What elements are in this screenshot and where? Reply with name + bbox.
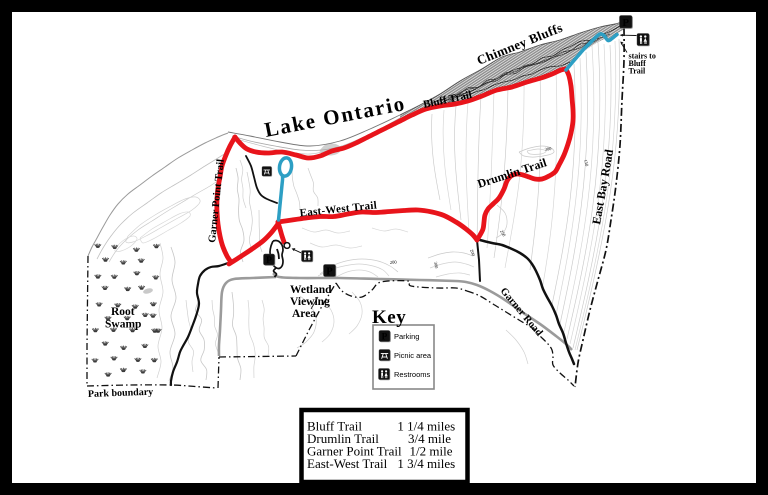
svg-text:Parking: Parking [394, 332, 419, 341]
svg-text:P: P [326, 266, 333, 277]
svg-text:Restrooms: Restrooms [394, 370, 431, 379]
svg-text:Area: Area [292, 308, 316, 320]
svg-text:Trail: Trail [629, 67, 647, 76]
svg-text:Swamp: Swamp [105, 319, 141, 331]
svg-text:Key: Key [372, 307, 406, 328]
svg-text:P: P [266, 255, 272, 266]
svg-text:P: P [382, 332, 388, 343]
svg-text:Viewing: Viewing [290, 296, 330, 308]
svg-text:200: 200 [390, 259, 398, 265]
svg-text:Wetland: Wetland [290, 284, 332, 296]
svg-text:1 3/4 miles: 1 3/4 miles [397, 456, 455, 471]
svg-text:East-West Trail: East-West Trail [307, 456, 388, 471]
svg-text:Root: Root [111, 306, 135, 318]
svg-text:Picnic area: Picnic area [394, 351, 432, 360]
svg-text:Park boundary: Park boundary [88, 387, 154, 400]
svg-text:P: P [622, 17, 629, 29]
